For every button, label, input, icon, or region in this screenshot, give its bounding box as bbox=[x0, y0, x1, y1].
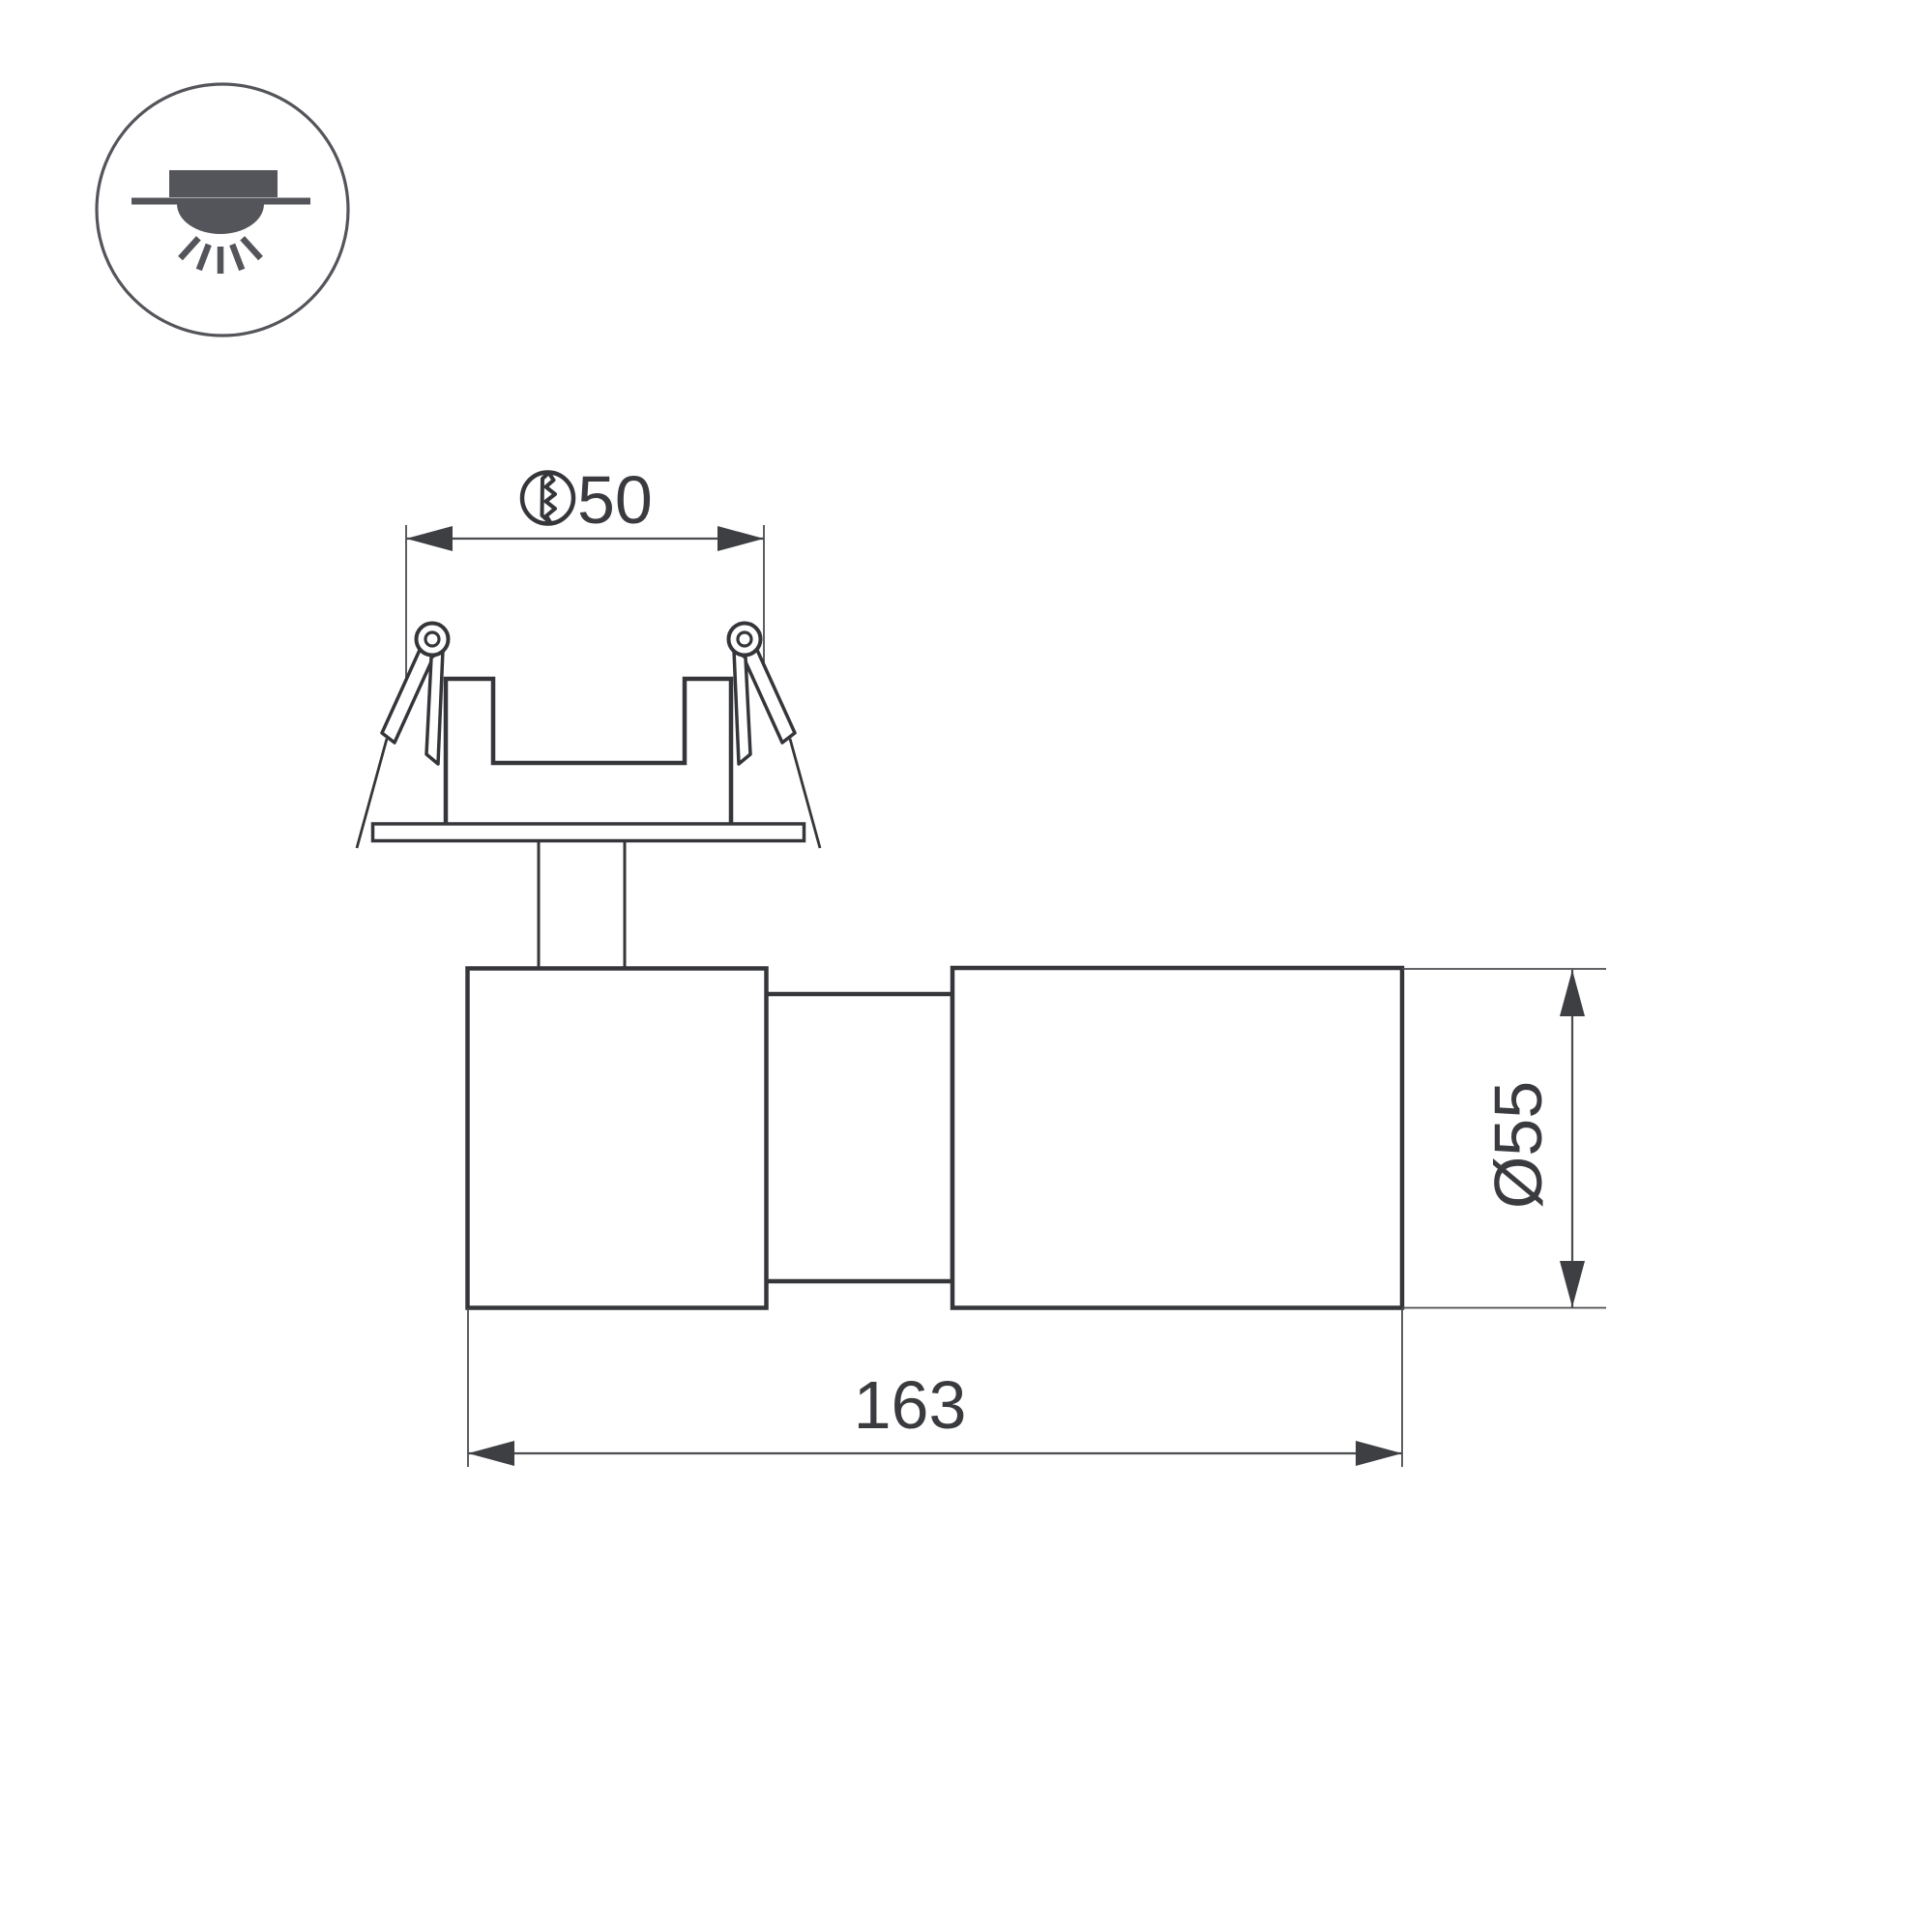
body-rear-section bbox=[468, 969, 767, 1308]
spring-clip-left bbox=[357, 624, 449, 849]
diameter-value: Ø55 bbox=[1480, 1081, 1556, 1209]
arrowhead-left-icon bbox=[468, 1441, 514, 1466]
hole-cutout-icon bbox=[522, 473, 573, 524]
diameter-dimension: Ø55 bbox=[1402, 969, 1606, 1308]
spring-clip-right bbox=[729, 624, 821, 849]
cutout-blade-shape bbox=[542, 473, 556, 524]
arrowhead-right-icon bbox=[1356, 1441, 1402, 1466]
mount-type-badge bbox=[97, 84, 348, 336]
length-value: 163 bbox=[854, 1367, 967, 1443]
arrowhead-down-icon bbox=[1560, 1261, 1585, 1307]
arrowhead-right-icon bbox=[717, 526, 764, 551]
light-ray bbox=[199, 245, 209, 270]
light-ray bbox=[232, 245, 242, 270]
light-dome bbox=[177, 204, 264, 234]
clip-blade bbox=[382, 648, 433, 743]
clip-pivot bbox=[729, 624, 761, 656]
cutout-dimension: 50 bbox=[406, 462, 764, 705]
light-rays-icon bbox=[181, 238, 261, 274]
luminaire-dimension-drawing: 50 bbox=[0, 0, 1932, 1932]
trim-ring bbox=[373, 824, 805, 841]
body-mid-section bbox=[766, 994, 952, 1281]
length-dimension: 163 bbox=[468, 1308, 1402, 1467]
arrowhead-left-icon bbox=[406, 526, 453, 551]
clip-blade bbox=[744, 648, 795, 743]
light-ray bbox=[181, 238, 199, 258]
clip-pivot bbox=[417, 624, 449, 656]
fixture-drawing bbox=[357, 624, 1402, 1308]
technical-drawing-page: 50 bbox=[0, 0, 1932, 1932]
body-front-section bbox=[952, 968, 1402, 1308]
stem bbox=[539, 841, 625, 968]
cutout-value: 50 bbox=[577, 462, 653, 538]
recessed-housing-shape bbox=[169, 170, 278, 197]
light-ray bbox=[243, 238, 261, 258]
mounting-bracket bbox=[446, 679, 731, 825]
arrowhead-up-icon bbox=[1560, 970, 1585, 1016]
recessed-downlight-icon bbox=[132, 170, 310, 274]
